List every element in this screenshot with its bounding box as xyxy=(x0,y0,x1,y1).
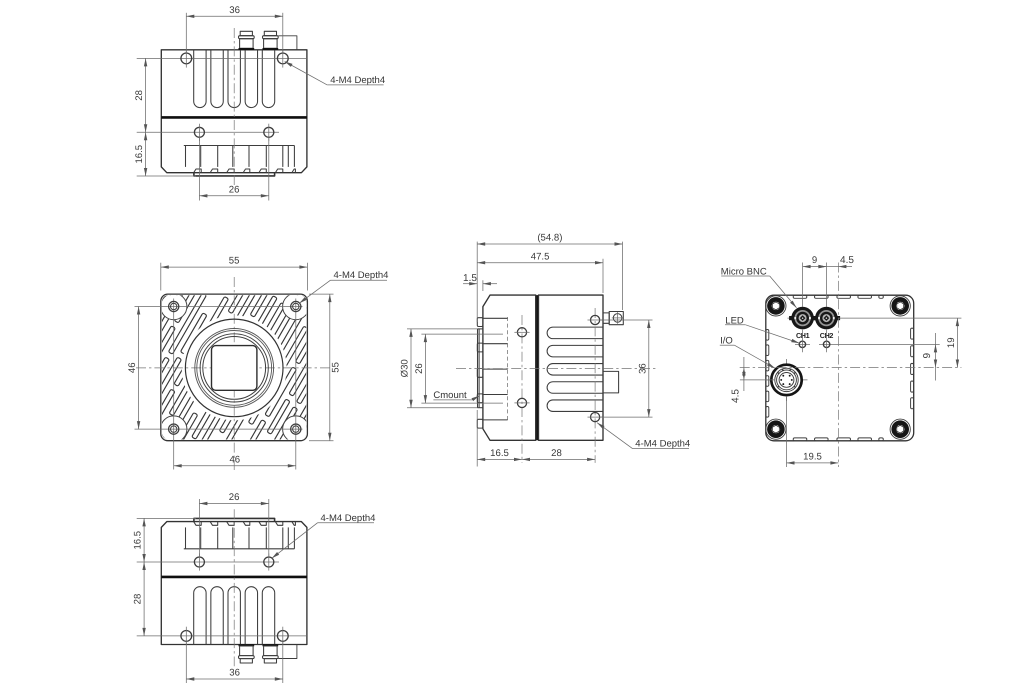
svg-text:16.5: 16.5 xyxy=(134,145,145,164)
svg-text:9: 9 xyxy=(922,352,933,358)
svg-text:Ø30: Ø30 xyxy=(400,359,411,377)
svg-text:28: 28 xyxy=(133,594,144,605)
svg-text:55: 55 xyxy=(331,362,342,373)
svg-text:46: 46 xyxy=(127,362,138,373)
svg-text:19: 19 xyxy=(946,337,957,348)
svg-text:28: 28 xyxy=(134,90,145,101)
svg-text:(54.8): (54.8) xyxy=(537,233,562,244)
svg-text:26: 26 xyxy=(414,363,425,374)
svg-text:36: 36 xyxy=(229,5,240,16)
svg-text:36: 36 xyxy=(637,363,648,374)
svg-text:4-M4 Depth4: 4-M4 Depth4 xyxy=(334,270,389,281)
svg-text:9: 9 xyxy=(812,255,817,266)
svg-text:1.5: 1.5 xyxy=(463,273,477,284)
svg-text:46: 46 xyxy=(229,454,240,465)
svg-text:36: 36 xyxy=(229,668,240,679)
svg-text:4-M4 Depth4: 4-M4 Depth4 xyxy=(330,75,385,86)
svg-text:26: 26 xyxy=(229,184,240,195)
svg-text:47.5: 47.5 xyxy=(531,251,550,262)
svg-text:28: 28 xyxy=(551,448,562,459)
svg-text:16.5: 16.5 xyxy=(133,531,144,550)
svg-text:4.5: 4.5 xyxy=(731,389,742,403)
svg-text:16.5: 16.5 xyxy=(490,448,509,459)
svg-text:26: 26 xyxy=(229,492,240,503)
svg-text:4-M4 Depth4: 4-M4 Depth4 xyxy=(321,513,376,524)
svg-text:Cmount: Cmount xyxy=(433,390,467,401)
svg-text:4-M4 Depth4: 4-M4 Depth4 xyxy=(635,439,690,450)
svg-text:55: 55 xyxy=(229,256,240,267)
svg-text:19.5: 19.5 xyxy=(803,452,822,463)
svg-text:4.5: 4.5 xyxy=(840,255,854,266)
